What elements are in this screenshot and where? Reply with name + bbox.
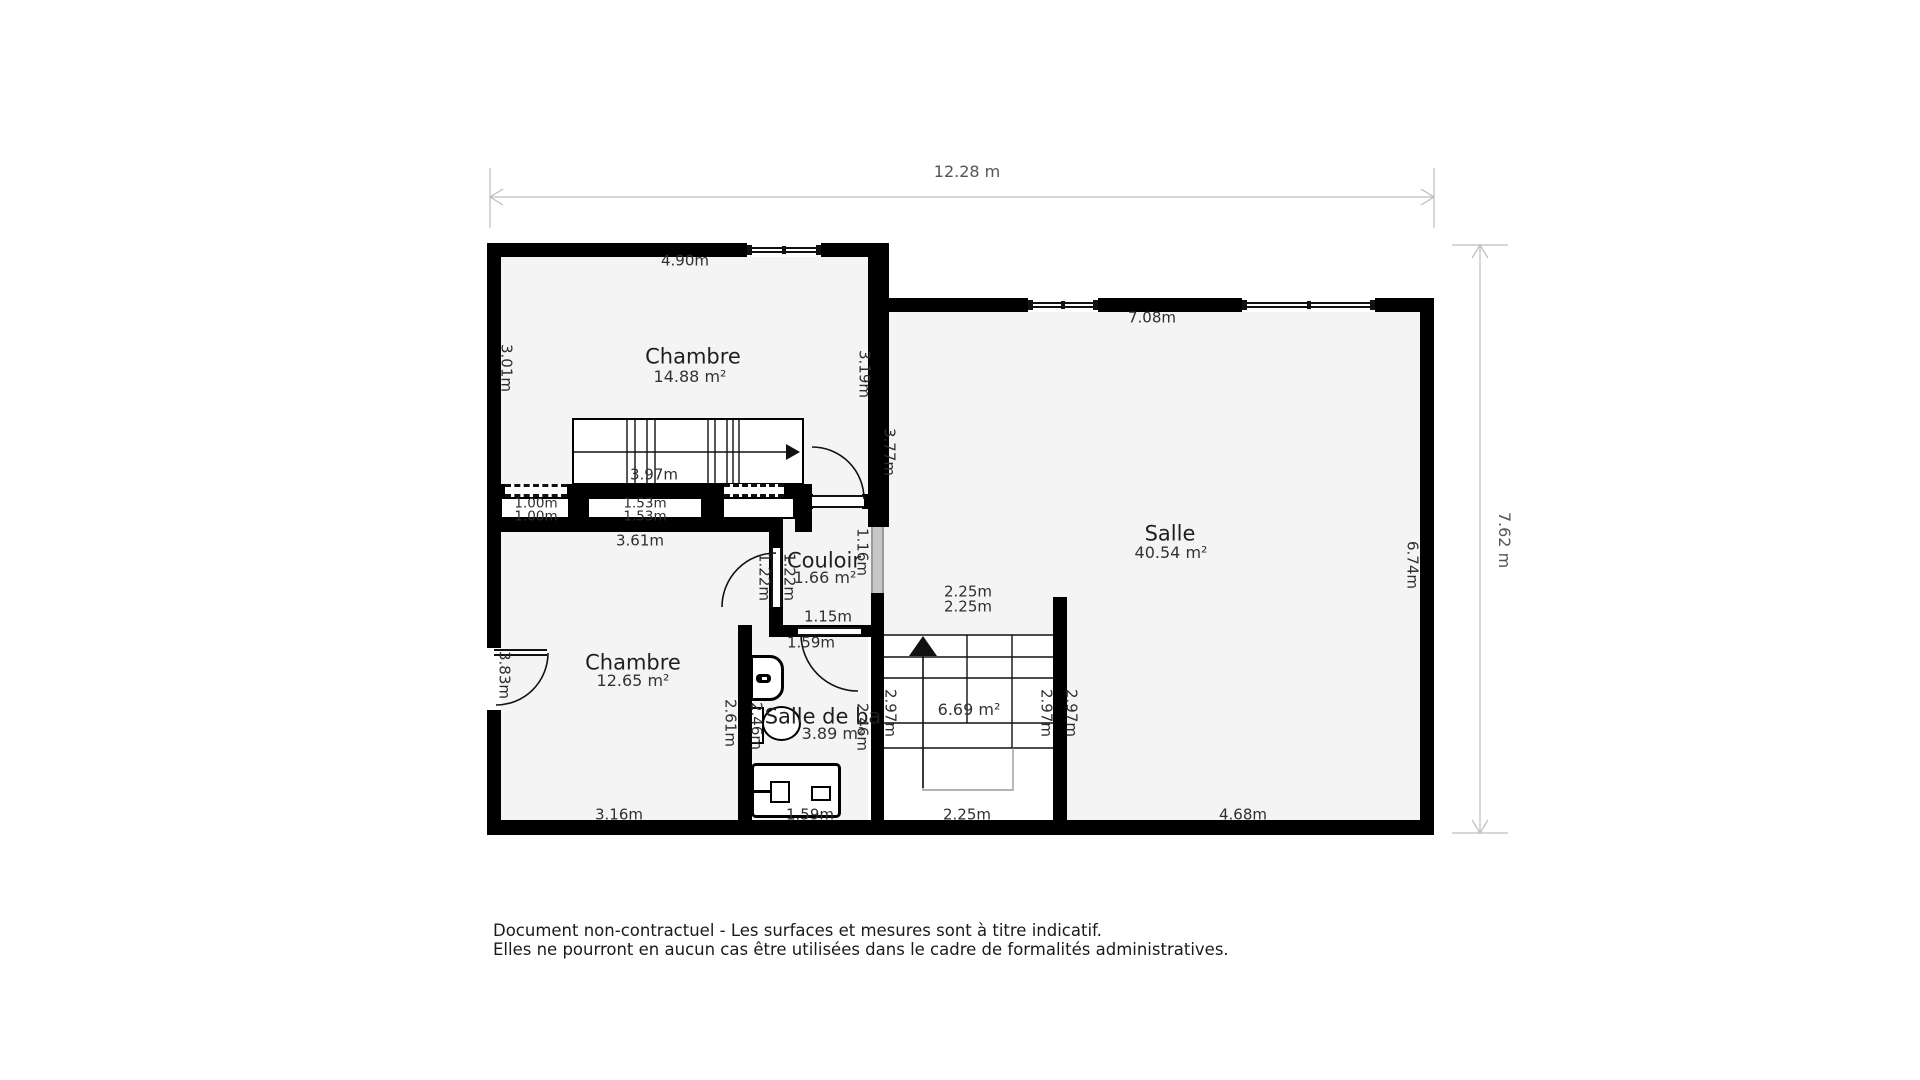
window-cap bbox=[1028, 300, 1033, 310]
bathtub-spout bbox=[751, 790, 771, 793]
room-area-couloir: 1.66 m² bbox=[794, 570, 857, 586]
room-area-bain: 3.89 m² bbox=[802, 726, 865, 742]
dim-bain-door: 1.59m bbox=[787, 636, 835, 651]
dim-couloir-right: 1.16m bbox=[855, 528, 870, 576]
dim-chambre1-top: 4.90m bbox=[661, 254, 709, 269]
dim-chambre2-bottom: 3.16m bbox=[595, 808, 643, 823]
disclaimer-line-1: Document non-contractuel - Les surfaces … bbox=[493, 921, 1229, 940]
dim-stairwell-left: 2.97m bbox=[883, 689, 898, 737]
dim-stairwell-bottom: 2.25m bbox=[943, 808, 991, 823]
dim-bain-bottom: 1.59m bbox=[786, 808, 834, 823]
closet-pocket-c bbox=[724, 499, 793, 517]
window-cap bbox=[747, 245, 752, 255]
overall-height-label: 7.62 m bbox=[1496, 512, 1512, 568]
window-cap bbox=[816, 245, 821, 255]
window-chambre1 bbox=[747, 243, 821, 257]
bathtub-soap-dish bbox=[811, 786, 831, 801]
dim-stairwell-top2: 2.25m bbox=[944, 600, 992, 615]
dim-chambre2-door: 3.83m bbox=[497, 651, 512, 699]
window-mullion bbox=[1061, 301, 1065, 309]
dim-stairs-upper: 3.97m bbox=[630, 468, 678, 483]
dim-stairwell-right-inner: 2.97m bbox=[1039, 689, 1054, 737]
dim-salle-bottom: 4.68m bbox=[1219, 808, 1267, 823]
dim-salle-right: 6.74m bbox=[1405, 541, 1420, 589]
dim-chambre1-left: 3.01m bbox=[499, 344, 514, 392]
room-area-stairwell: 6.69 m² bbox=[938, 702, 1001, 718]
room-label-salle: Salle bbox=[1145, 524, 1196, 545]
passage-opening bbox=[871, 527, 884, 593]
window-mullion bbox=[782, 246, 786, 254]
room-area-chambre2: 12.65 m² bbox=[597, 673, 670, 689]
dim-chambre1-right: 3.19m bbox=[857, 350, 872, 398]
bathtub-faucet-box bbox=[770, 781, 790, 803]
stairwell-floor bbox=[884, 635, 1053, 820]
room-label-chambre1: Chambre bbox=[645, 347, 741, 368]
window-salle-2 bbox=[1242, 298, 1375, 312]
room-area-chambre1: 14.88 m² bbox=[654, 369, 727, 385]
dim-couloir-left-outer: 1.22m bbox=[757, 553, 772, 601]
dim-closet-a2: 1.00m bbox=[514, 510, 557, 524]
washbasin-tap-slot bbox=[762, 677, 767, 680]
floorplan-page: { "overall_dimensions": { "width": "12.2… bbox=[0, 0, 1920, 1080]
dim-salle-top: 7.08m bbox=[1128, 311, 1176, 326]
washbasin bbox=[750, 655, 784, 701]
room-area-salle: 40.54 m² bbox=[1135, 545, 1208, 561]
disclaimer-text: Document non-contractuel - Les surfaces … bbox=[493, 921, 1229, 959]
wall-left bbox=[487, 243, 501, 835]
door-leaf-chambre1 bbox=[812, 495, 864, 508]
dim-salle-left: 3.77m bbox=[882, 428, 897, 476]
window-cap bbox=[1093, 300, 1098, 310]
window-cap bbox=[1370, 300, 1375, 310]
window-cap bbox=[1242, 300, 1247, 310]
staircase-upper bbox=[572, 418, 804, 485]
window-salle-1 bbox=[1028, 298, 1098, 312]
dim-couloir-left-inner: 1.22m bbox=[782, 553, 797, 601]
wall-right bbox=[1420, 298, 1434, 835]
dashed-opening-right bbox=[724, 484, 784, 497]
dim-bain-left-inner: 2.46m bbox=[749, 702, 764, 750]
dim-couloir-bottom: 1.15m bbox=[804, 610, 852, 625]
dim-closet-b2: 1.53m bbox=[623, 510, 666, 524]
dim-chambre2-top: 3.61m bbox=[616, 534, 664, 549]
window-mullion bbox=[1307, 301, 1311, 309]
overall-width-label: 12.28 m bbox=[934, 164, 1000, 180]
disclaimer-line-2: Elles ne pourront en aucun cas être util… bbox=[493, 940, 1229, 959]
dim-stairwell-right-outer: 2.97m bbox=[1064, 689, 1079, 737]
dim-bain-left-outer: 2.61m bbox=[723, 699, 738, 747]
